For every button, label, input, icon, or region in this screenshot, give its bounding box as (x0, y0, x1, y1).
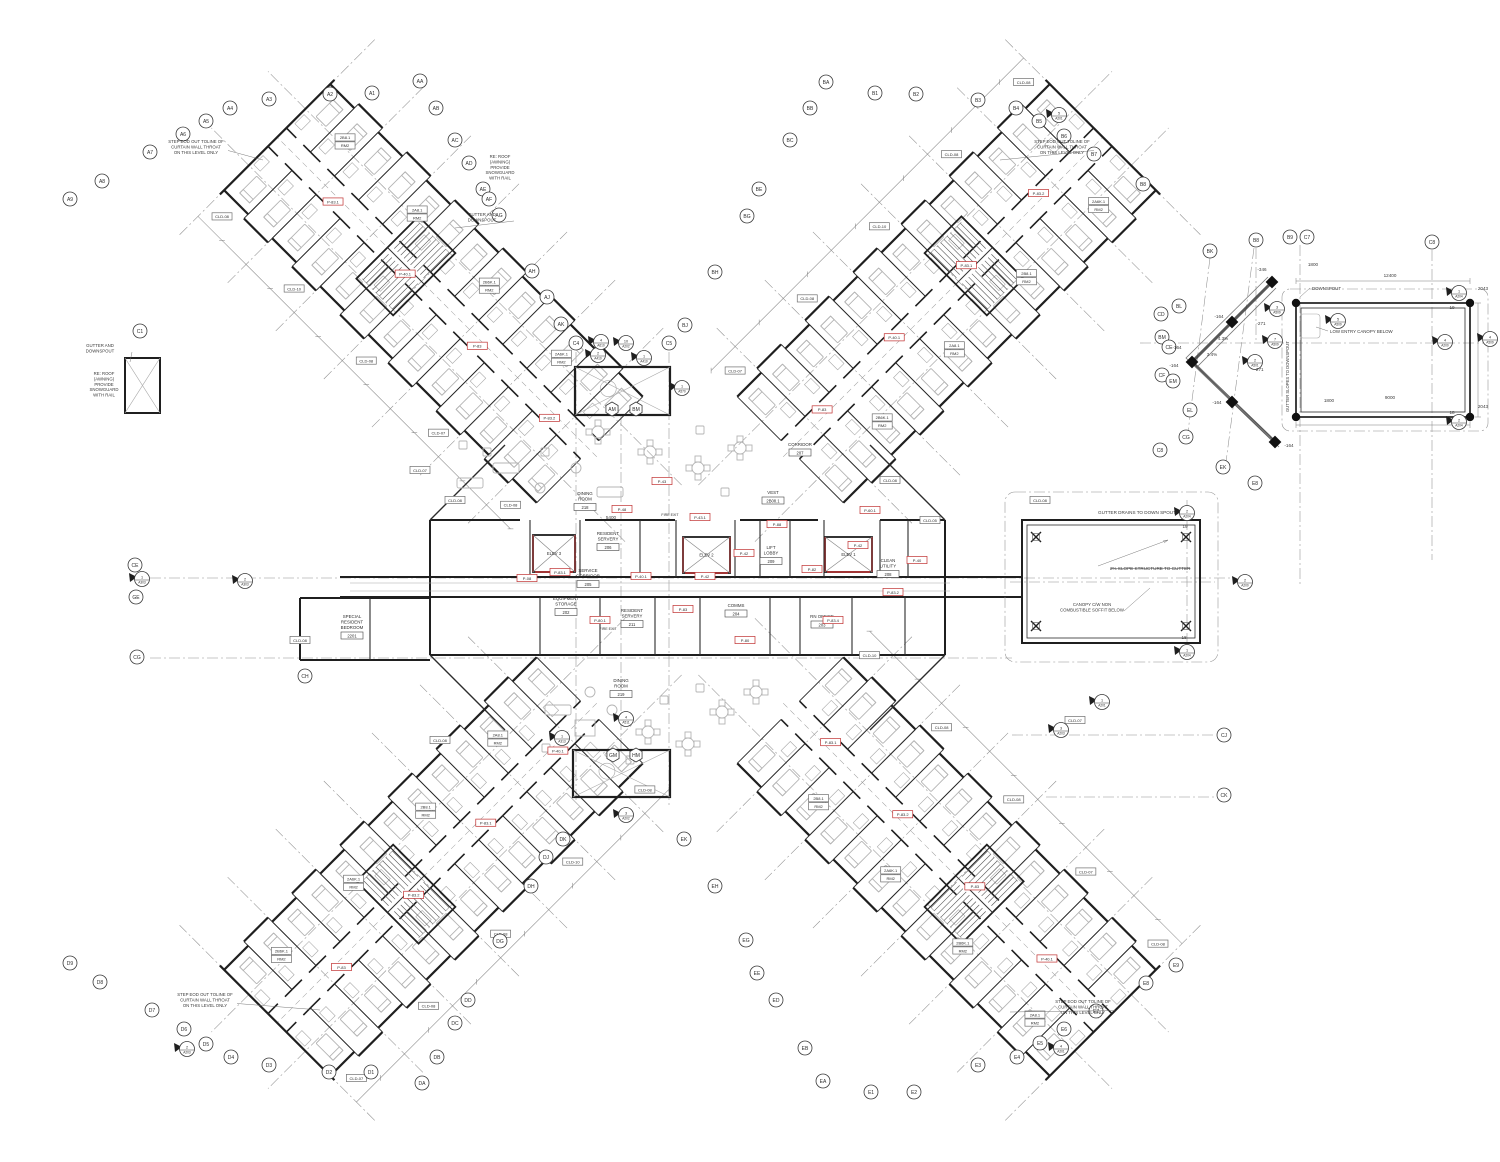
wall-type-tag-label: CLD-08 (1017, 80, 1032, 85)
corridor-wall (292, 966, 316, 990)
partition-wall (872, 725, 944, 797)
corridor-wall (551, 392, 575, 416)
keynote-tag: P-83 (673, 605, 693, 612)
fire-exit-label: FIRE EXIT (599, 627, 617, 631)
wall-type-tag-label: CLD-07 (1068, 718, 1083, 723)
grid-bubble: CD (1154, 307, 1168, 321)
grid-bubble-label: GE (132, 595, 140, 601)
wall-type-tag: CLD-07 (346, 1074, 366, 1081)
keynote-tag: P-83.2 (893, 811, 913, 818)
pillow-symbol (384, 334, 397, 347)
stair-tread (985, 261, 1010, 286)
keynote-tag: P-80 (735, 636, 755, 643)
grid-bubble: C8 (1425, 235, 1439, 249)
grid-bubble: E2 (907, 1085, 921, 1099)
corridor-wall (484, 363, 508, 387)
pillow-symbol (1079, 238, 1092, 251)
exterior-wall (968, 363, 992, 387)
wall-type-tag-label: 2B6K.1 (956, 940, 970, 945)
wall-type-tag: RM2 (335, 142, 355, 149)
grid-bubble: E6 (1057, 1022, 1071, 1036)
grid-bubble: A7 (143, 145, 157, 159)
room-label: RESIDENTSERVERY211 (621, 608, 644, 628)
annotation-leader (1124, 588, 1150, 611)
wall-type-tag: CLD-08 (635, 786, 655, 793)
room-number: 202 (563, 610, 571, 615)
pillow-symbol (959, 358, 972, 371)
grid-bubble-label: A2 (327, 92, 333, 98)
wall-type-tag-label: RM2 (1094, 207, 1103, 212)
grid-bubble-label: B4 (1013, 106, 1019, 112)
corridor-wall (412, 845, 436, 869)
detail-marker-number: 5 (1337, 318, 1339, 322)
stair-tread (972, 861, 997, 886)
chair-symbol (719, 700, 725, 706)
pillow-symbol (570, 806, 583, 819)
dimension-text: -271 (1254, 367, 1264, 372)
detail-marker-sheet: A570 (678, 390, 686, 394)
pillow-symbol (1127, 957, 1140, 970)
partition-wall (436, 363, 508, 435)
detail-marker: 1A201 (1089, 695, 1110, 710)
corridor-wall (364, 243, 388, 267)
grid-bubble-label: BJ (682, 323, 688, 329)
terrace (575, 367, 670, 415)
pillow-symbol (432, 765, 445, 778)
detail-marker-sheet: A200 (1441, 344, 1449, 348)
keynote-tag-label: P-83.2 (544, 416, 557, 421)
wall-type-tag: RM2 (953, 947, 973, 954)
wall-type-tag-label: RM2 (814, 804, 823, 809)
wall-type-tag-label: 2B6K.1 (275, 949, 289, 954)
chair-symbol (595, 420, 601, 426)
exterior-wall (833, 859, 857, 883)
wall-type-tag-label: CLD-08 (433, 738, 448, 743)
keynote-tag: P-83 (467, 342, 487, 349)
chair-symbol (719, 718, 725, 724)
corridor-wall (436, 821, 460, 845)
wall-type-tag: 2A6K.1 (551, 350, 571, 357)
detail-marker-number: 2 (597, 352, 599, 356)
exterior-wall (465, 431, 489, 455)
grid-line (1226, 248, 1254, 462)
keynote-tag-label: P-83.1 (960, 263, 973, 268)
grid-bubble-label: A9 (67, 197, 73, 203)
pillow-symbol (312, 885, 325, 898)
grid-bubble-label: AA (417, 79, 424, 85)
grid-bubble: A3 (262, 92, 276, 106)
exterior-wall (968, 773, 992, 797)
exterior-wall (891, 431, 915, 455)
table-symbol (750, 686, 762, 698)
exterior-wall (551, 296, 575, 320)
grid-bubble-label: AK (558, 322, 565, 328)
table-symbol (716, 706, 728, 718)
keynote-tag: P-80.1 (590, 616, 610, 623)
pillow-symbol (360, 837, 373, 850)
grid-bubble: D6 (177, 1022, 191, 1036)
keynote-tag-label: P-83 (337, 965, 346, 970)
corridor-wall (997, 200, 1021, 224)
dimension-text: 19 (1182, 524, 1188, 529)
detail-marker-number: 2 (244, 578, 246, 582)
exterior-wall (737, 763, 761, 787)
exterior-wall (272, 898, 296, 922)
detail-marker: 4A201 (1048, 1041, 1069, 1056)
wall-type-tag-label: CLD-10 (872, 224, 887, 229)
grid-bubble: EA (816, 1074, 830, 1088)
annotation-note: STEP EOD OUT TOLINE OFCURTAIN WALL THROA… (1000, 139, 1094, 160)
wall-type-tag-label: CLD-10 (566, 859, 581, 864)
exterior-wall (244, 917, 268, 941)
chair-symbol (746, 445, 752, 451)
elevator-label: ELEV 2 (699, 553, 714, 558)
room-label: SPECIALRESIDENTBEDROOM2201 (341, 614, 364, 639)
grid-bubble-label: B9 (1287, 235, 1293, 241)
grid-bubble-label: D7 (149, 1008, 156, 1014)
keynote-tag-label: P-80.1 (594, 618, 607, 623)
detail-marker-sheet: A202 (622, 817, 630, 821)
detail-marker: 7A509 (1262, 334, 1283, 349)
grid-bubble-label: E8 (1143, 981, 1149, 987)
pillow-symbol (354, 1023, 367, 1036)
grid-bubble: D8 (93, 975, 107, 989)
corridor-wall (268, 990, 292, 1014)
wing-dim-line (198, 216, 511, 529)
keynote-tag-label: P-83.1 (480, 821, 493, 826)
detail-marker: 4A511 (613, 712, 634, 727)
pillow-symbol (1031, 286, 1044, 299)
wall-type-tag-label: CLD-08 (504, 503, 519, 508)
grid-bubble-label: AC (452, 138, 459, 144)
keynote-tag: P-42 (848, 541, 868, 548)
grid-bubble-label: D8 (97, 980, 104, 986)
grid-bubble-label: AJ (544, 295, 550, 301)
corridor-wall (872, 773, 896, 797)
corridor-wall (901, 296, 925, 320)
pillow-symbol (432, 382, 445, 395)
corridor-wall (805, 744, 829, 768)
exterior-wall (1026, 1052, 1050, 1076)
dimension-text: -164 (1212, 400, 1222, 405)
pillow-symbol (983, 334, 996, 347)
grid-bubble-hex: HM (630, 748, 642, 762)
grid-bubble-label: B1 (872, 91, 878, 97)
keynote-tag: P-42 (734, 549, 754, 556)
exterior-wall (416, 753, 440, 777)
grid-bubble-label: A1 (369, 91, 375, 97)
room-number: 206 (605, 545, 613, 550)
stair-tread (978, 267, 1003, 292)
corridor-wall (268, 146, 292, 170)
detail-marker-number: 3 (1060, 727, 1062, 731)
pillow-symbol (838, 669, 851, 682)
grid-bubble: C1 (133, 324, 147, 338)
keynote-tag: P-40.1 (548, 747, 568, 754)
pillow-symbol (749, 388, 762, 401)
grid-bubble-label: AM (608, 407, 616, 413)
exterior-wall (1064, 267, 1088, 291)
grid-bubble-label: E2 (911, 1090, 917, 1096)
corridor-wall (997, 936, 1021, 960)
wall-type-tag: RM2 (881, 875, 901, 882)
exterior-wall (1084, 238, 1108, 262)
corridor-wall (334, 176, 358, 200)
grid-bubble-label: D4 (228, 1055, 235, 1061)
pillow-symbol (378, 148, 391, 161)
grid-bubble-hex: GM (607, 748, 619, 762)
grid-bubble-label: D6 (181, 1027, 188, 1033)
pillow-symbol (360, 310, 373, 323)
grid-bubble-label: ED (773, 998, 780, 1004)
exterior-wall (358, 1032, 382, 1056)
keynote-tag: P-40.1 (395, 270, 415, 277)
corridor-wall (503, 344, 527, 368)
dimension-text: -346 (1257, 267, 1267, 272)
corridor-wall (1064, 966, 1088, 990)
chair-symbol (638, 449, 644, 455)
room-name: DININGROOM (577, 491, 593, 502)
wall-type-tag-label: 2B8.1 (420, 804, 431, 809)
stair-tread (982, 264, 1007, 289)
grid-bubble-label: D1 (368, 1070, 375, 1076)
grid-bubble: B4 (1009, 101, 1023, 115)
exterior-wall (619, 373, 643, 397)
exterior-wall (1132, 946, 1156, 970)
elevator-label: ELEV 3 (547, 551, 562, 556)
keynote-tag: P-40.1 (1037, 955, 1057, 962)
pillow-symbol (893, 903, 906, 916)
partition-wall (292, 218, 364, 290)
corridor-wall (455, 840, 479, 864)
chair-symbol (459, 441, 467, 449)
keynote-tag-label: P-40.1 (552, 748, 565, 753)
stair-tread (969, 858, 994, 883)
wall-type-tag: RM2 (809, 803, 829, 810)
grid-bubble-label: B8 (1140, 182, 1146, 188)
grid-bubble: BJ (678, 318, 692, 332)
detail-marker-sheet: A203 (183, 1051, 191, 1055)
grid-bubble: BB (803, 101, 817, 115)
grid-bubble: BL (1172, 299, 1186, 313)
keynote-tag: P-40.1 (631, 572, 651, 579)
wing-axis-gridline (211, 618, 625, 1032)
chair-symbol (696, 426, 704, 434)
wing-axis-gridline (755, 618, 1169, 1032)
pillow-symbol (893, 244, 906, 257)
wall-type-tag-label: RM2 (494, 740, 503, 745)
partition-wall (920, 773, 992, 845)
keynote-tag: P-83.1 (550, 568, 570, 575)
detail-markers-layer: 5A2012A4101A4104A61010A2021A5703A2022A20… (129, 108, 1498, 1057)
keynote-tag: P-88 (767, 520, 787, 527)
pillow-symbol (426, 951, 439, 964)
exterior-wall (503, 248, 527, 272)
grid-bubble: EE (750, 966, 764, 980)
grid-bubble-hex: AM (606, 402, 618, 416)
grid-bubble-label: AG (495, 213, 502, 219)
keynote-tag-label: P-43 (658, 479, 667, 484)
detail-marker-number: 5 (1058, 112, 1060, 116)
grid-bubble: DA (415, 1076, 429, 1090)
wall-type-tag: CLD-08 (880, 476, 900, 483)
stair-tread (411, 239, 436, 264)
wall-type-tag-label: CLD-05 (923, 518, 938, 523)
detail-marker-sheet: A201 (1098, 704, 1106, 708)
chair-symbol (694, 741, 700, 747)
wing-axis-gridline (211, 128, 625, 542)
pillow-symbol (749, 758, 762, 771)
grid-bubble: D4 (224, 1050, 238, 1064)
pillow-symbol (402, 172, 415, 185)
grid-bubble-label: EG (742, 938, 749, 944)
grid-bubble-label: A6 (180, 132, 186, 138)
exterior-wall (416, 383, 440, 407)
wall-type-tag-label: 2B6K.1 (876, 415, 890, 420)
chair-symbol (728, 709, 734, 715)
grid-bubble: EL (1183, 403, 1197, 417)
low-entry-canopy-note: LOW ENTRY CANOPY BELOW (1330, 329, 1394, 334)
wall-type-tag: RM2 (872, 422, 892, 429)
detail-marker-number: 7 (1274, 338, 1276, 342)
wall-type-tag: 2A6K.1 (1089, 197, 1109, 204)
grid-bubble-label: CE (132, 563, 140, 569)
room-name: DININGROOM (613, 678, 629, 689)
exterior-wall (853, 248, 877, 272)
gutter-slope-note: GUTTER SLOPES TO DOWNSPOUT (1285, 341, 1290, 412)
detail-marker-number: 1 (681, 385, 683, 389)
room-name: SERVICECORRIDOR (576, 568, 600, 579)
exterior-wall (426, 180, 450, 204)
exterior-wall (939, 383, 963, 407)
pillow-symbol (474, 244, 487, 257)
pillow-symbol (240, 957, 253, 970)
corridor-wall (829, 768, 853, 792)
detail-marker-sheet: A410 (640, 360, 648, 364)
detail-marker: 4A610 (588, 335, 609, 350)
pillow-symbol (288, 238, 301, 251)
exterior-wall (1016, 315, 1040, 339)
core-diagonal-walls (430, 445, 945, 730)
wall-type-tag-label: RM2 (341, 143, 350, 148)
detail-marker-sheet: A610 (597, 344, 605, 348)
keynote-tag: P-82 (802, 565, 822, 572)
pillow-symbol (1013, 1023, 1026, 1036)
wall-type-tag: RM2 (944, 350, 964, 357)
grid-bubble-label: DK (560, 837, 568, 843)
grid-bubble-label: C5 (666, 341, 673, 347)
detail-marker-sheet: A201 (1057, 1050, 1065, 1054)
grid-bubble-label: D2 (326, 1070, 333, 1076)
exterior-wall (901, 936, 925, 960)
corridor-wall (901, 840, 925, 864)
detail-marker-number: 1 (643, 355, 645, 359)
wall-type-tag: RM2 (1016, 278, 1036, 285)
pillow-symbol (959, 789, 972, 802)
grid-bubble: B8 (1136, 177, 1150, 191)
column-mark (1031, 621, 1041, 631)
room-name: COMMS (728, 603, 745, 608)
dimension-text: 9000 (1385, 395, 1396, 400)
wall-type-tag-label: RM2 (485, 287, 494, 292)
dimension-text: -164 (1172, 345, 1182, 350)
wall-type-tag: 2A8.1 (488, 731, 508, 738)
room-number: 205 (585, 582, 593, 587)
room-name: SPECIALRESIDENTBEDROOM (341, 614, 364, 630)
exterior-wall (484, 677, 508, 701)
room-number: 2201 (347, 633, 357, 638)
pillow-symbol (773, 364, 786, 377)
grid-bubble: AA (413, 74, 427, 88)
pillow-symbol (910, 406, 923, 419)
exterior-wall (407, 152, 431, 176)
grid-bubble: D2 (322, 1065, 336, 1079)
pillow-symbol (402, 975, 415, 988)
grid-bubble: A9 (63, 192, 77, 206)
room-number: 207 (797, 450, 805, 455)
chair-symbol (696, 684, 704, 692)
detail-marker-number: 2 (1254, 359, 1256, 363)
stair-tread (379, 864, 404, 889)
room-number: 208 (885, 572, 893, 577)
wall-type-tag: 2A8.1 (944, 342, 964, 349)
grid-bubble: EB (798, 1041, 812, 1055)
pillow-symbol (773, 782, 786, 795)
grid-bubble: D9 (63, 956, 77, 970)
keynote-tag-label: P-83 (971, 884, 980, 889)
grid-bubble: DC (448, 1016, 462, 1030)
corridor-wall (358, 936, 382, 960)
corridor-wall (508, 749, 532, 773)
partition-wall (1064, 917, 1136, 989)
grid-bubble-label: BG (743, 214, 750, 220)
pillow-symbol (845, 855, 858, 868)
exterior-wall (455, 936, 479, 960)
pillow-symbol (983, 813, 996, 826)
dimension-text: 2043 (1478, 404, 1489, 409)
pillow-symbol (480, 430, 493, 443)
exterior-wall (843, 657, 867, 681)
exterior-wall (757, 344, 781, 368)
detail-marker-sheet: A204 (1455, 295, 1463, 299)
entry-canopy-detail (1300, 314, 1320, 338)
stair-tread (401, 905, 426, 930)
detail-marker: 5A509 (1325, 314, 1346, 329)
wall-type-tag: CLD-07 (410, 466, 430, 473)
room-label: EQUIPMENTSTORAGE202 (553, 596, 579, 616)
corridor-wall (527, 368, 551, 392)
grid-bubble-label: C7 (1304, 235, 1311, 241)
detail-marker: 1A204 (1174, 645, 1195, 660)
terrace-stair-circle (599, 763, 615, 779)
pillow-symbol (408, 789, 421, 802)
exterior-wall (619, 763, 643, 787)
keynote-tag: P-83 (965, 883, 985, 890)
annotation-text: STEP EOD OUT TOLINE OFCURTAIN WALL THROA… (177, 992, 233, 1008)
keynote-tag: P-42 (695, 572, 715, 579)
detail-marker-number: 1 (561, 735, 563, 739)
grid-bubble-label: EM (1169, 379, 1177, 385)
room-label: RESIDENTSERVERY206 (597, 531, 620, 551)
pillow-symbol (821, 830, 834, 843)
stair-tread (947, 236, 972, 261)
grid-bubble: DJ (539, 850, 553, 864)
grid-bubble-label: BA (823, 80, 830, 86)
grid-bubble: AB (429, 101, 443, 115)
grid-bubble: AC (448, 133, 462, 147)
pillow-symbol (1007, 310, 1020, 323)
keynote-tag-label: P-82 (808, 567, 817, 572)
